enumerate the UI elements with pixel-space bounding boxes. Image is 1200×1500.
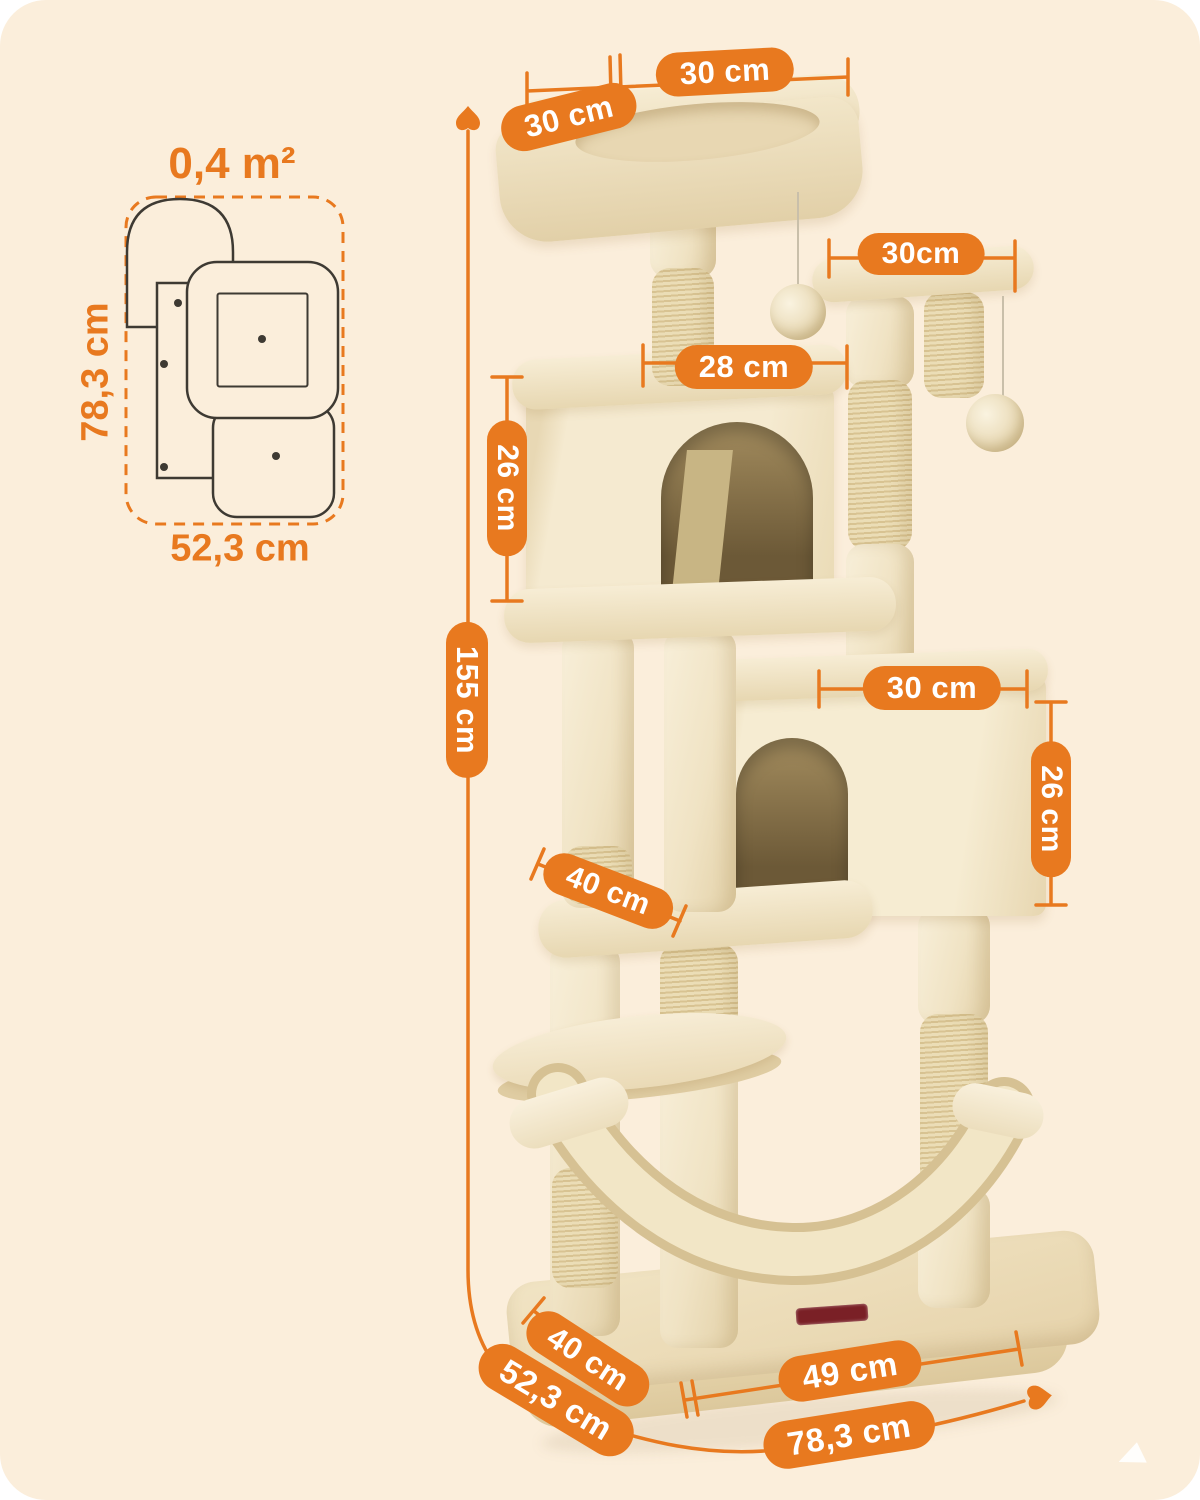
dim-upper-platform-pill: 30cm [858,233,985,275]
dim-lower-house-height-pill: 26 cm [1031,741,1071,877]
measurement-lines [0,0,1200,1500]
dim-upper-house-height-pill: 26 cm [487,420,527,556]
heart-arrowhead-right-icon [1026,1383,1053,1410]
dim-lower-house-width-pill: 30 cm [863,666,1001,710]
dim-total-height-pill: 155 cm [446,622,488,778]
total-height-sweep-line [468,131,1024,1452]
dim-upper-house-width-pill: 28 cm [675,345,813,389]
product-dimension-sheet: 0,4 m² 78,3 cm 52,3 cm [0,0,1200,1500]
dim-top-bed-width-pill: 30 cm [655,46,796,97]
heart-arrowhead-up-icon [456,106,480,130]
